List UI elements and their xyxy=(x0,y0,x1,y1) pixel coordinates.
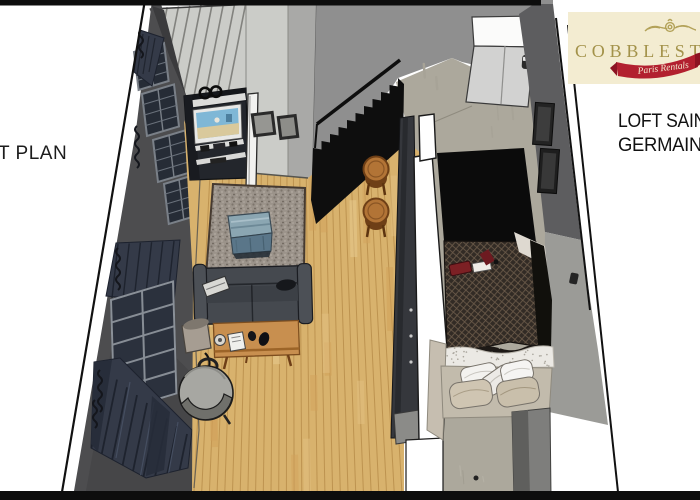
svg-text:COBBLEST: COBBLEST xyxy=(575,41,700,61)
svg-text:GERMAIN: GERMAIN xyxy=(618,135,700,156)
svg-text:T PLAN: T PLAN xyxy=(0,143,67,164)
svg-text:LOFT SAIN: LOFT SAIN xyxy=(618,111,700,132)
